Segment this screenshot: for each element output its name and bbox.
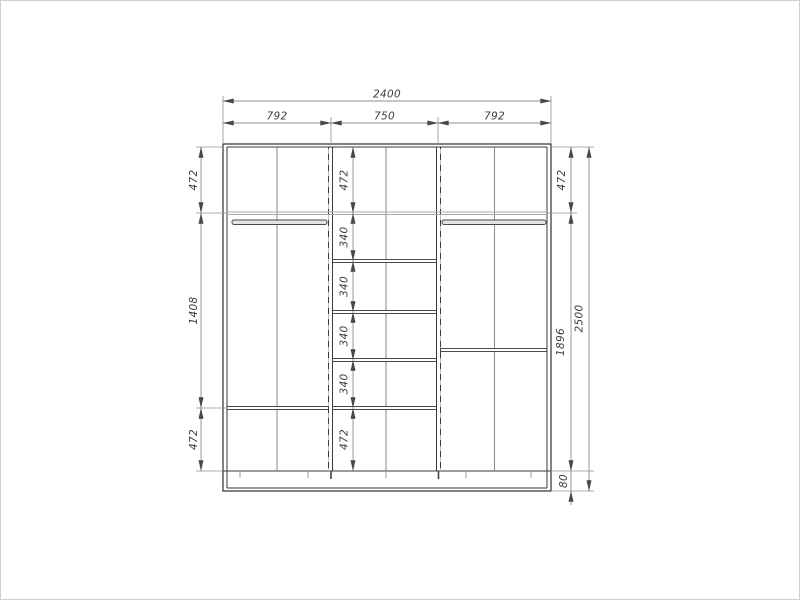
dim-section-middle-label: 750 bbox=[374, 111, 395, 123]
dim-overall-height-label: 2500 bbox=[574, 305, 586, 333]
dim-right-1896-label: 1896 bbox=[555, 328, 567, 356]
dim-mid-472-top-label: 472 bbox=[339, 170, 351, 191]
dim-mid-340-1-label: 340 bbox=[339, 227, 351, 248]
dim-section-left-label: 792 bbox=[267, 111, 288, 123]
extension-lines bbox=[196, 96, 594, 491]
interior-shelves bbox=[227, 260, 547, 410]
middle-shelf-4 bbox=[333, 407, 437, 410]
middle-shelf-3 bbox=[333, 359, 437, 362]
dim-mid-340-2-label: 340 bbox=[339, 276, 351, 297]
dim-left-1408-label: 1408 bbox=[188, 297, 200, 325]
dim-mid-340-3-label: 340 bbox=[339, 326, 351, 347]
hanging-rod-right bbox=[442, 220, 546, 225]
dim-section-right-label: 792 bbox=[484, 111, 505, 123]
drawing-page: 2400 792 750 792 472 1408 472 472 340 34… bbox=[0, 0, 800, 600]
wardrobe-technical-drawing: 2400 792 750 792 472 1408 472 472 340 34… bbox=[1, 1, 800, 600]
right-middle-shelf bbox=[441, 349, 548, 352]
dim-right-80-label: 80 bbox=[558, 474, 570, 488]
middle-shelf-2 bbox=[333, 311, 437, 314]
dimension-labels: 2400 792 750 792 472 1408 472 472 340 34… bbox=[188, 89, 586, 488]
dim-right-472-label: 472 bbox=[556, 170, 568, 191]
dim-mid-472-bottom-label: 472 bbox=[339, 429, 351, 450]
carcass-outer-rect bbox=[223, 144, 551, 491]
top-shelf-and-rods bbox=[227, 212, 547, 225]
door-split-lines bbox=[277, 147, 495, 471]
dim-left-472-top-label: 472 bbox=[188, 170, 200, 191]
plinth-feet bbox=[240, 471, 531, 479]
dim-left-472-bottom-label: 472 bbox=[188, 429, 200, 450]
wardrobe-carcass bbox=[223, 144, 551, 491]
section-dividers bbox=[329, 147, 441, 471]
dim-mid-340-4-label: 340 bbox=[339, 374, 351, 395]
dimension-lines bbox=[201, 101, 589, 505]
left-bottom-shelf bbox=[227, 407, 329, 410]
dim-total-width-label: 2400 bbox=[373, 89, 401, 101]
hanging-rod-left bbox=[232, 220, 327, 225]
middle-shelf-1 bbox=[333, 260, 437, 263]
